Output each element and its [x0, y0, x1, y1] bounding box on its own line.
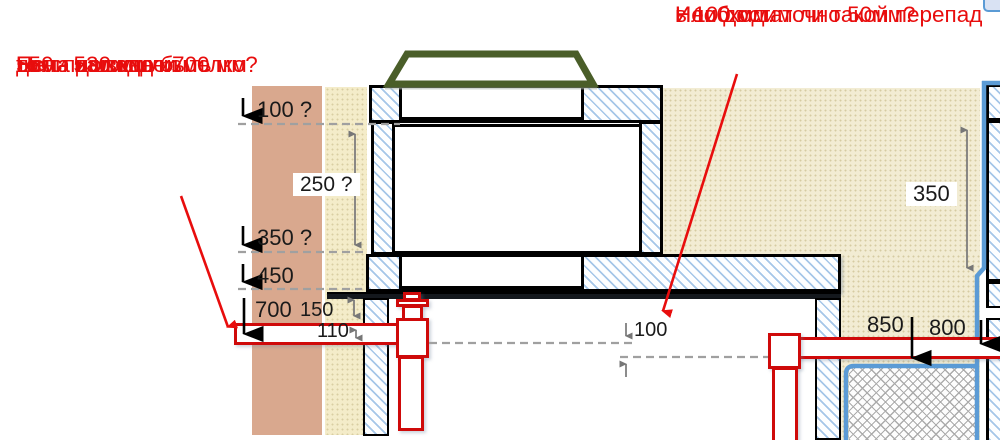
dim-110: 110 — [317, 321, 349, 341]
pit-interior — [392, 124, 642, 254]
pit-wall-right — [639, 121, 663, 255]
corner-shape — [983, 0, 1000, 12]
dim-800: 800 — [929, 317, 966, 339]
dim-250q: 250 ? — [293, 173, 360, 196]
house-wall-strip — [252, 86, 322, 435]
dim-150: 150 — [300, 300, 333, 320]
dim-100q: 100 ? — [257, 99, 312, 121]
well-ring-joint-2 — [986, 279, 1000, 284]
dim-100-drop: 100 — [634, 320, 667, 340]
well-ring-gap — [986, 306, 1000, 320]
dim-350q: 350 ? — [257, 227, 312, 249]
soil-right-upper — [663, 88, 980, 254]
dim-700: 700 — [255, 299, 292, 321]
downpipe-house — [398, 356, 424, 431]
note-left-line5: Не слишком ли мелко? — [16, 51, 258, 78]
foundation-pier-left — [363, 298, 389, 436]
dim-450: 450 — [257, 265, 294, 287]
well-ring-column — [986, 84, 1000, 440]
footing-window — [399, 254, 584, 289]
dim-850: 850 — [867, 314, 904, 336]
foundation-pier-right — [815, 298, 841, 440]
soil-strip-left — [325, 87, 367, 435]
well-ring-joint-1 — [986, 118, 1000, 123]
sewer-pipe-well — [797, 337, 1000, 359]
dim-350r: 350 — [906, 182, 957, 206]
downpipe-well — [772, 367, 798, 440]
pipe-tee — [396, 318, 429, 358]
note-top-right-line3: Или достаточно 50мм? — [675, 1, 916, 28]
gravel-bed — [849, 368, 977, 440]
pit-top-window — [399, 85, 584, 120]
pipe-elbow-well — [768, 333, 801, 369]
green-lid — [389, 54, 593, 84]
section-drawing: Если на входе 700 мм то на выходе из дом… — [0, 0, 1000, 440]
